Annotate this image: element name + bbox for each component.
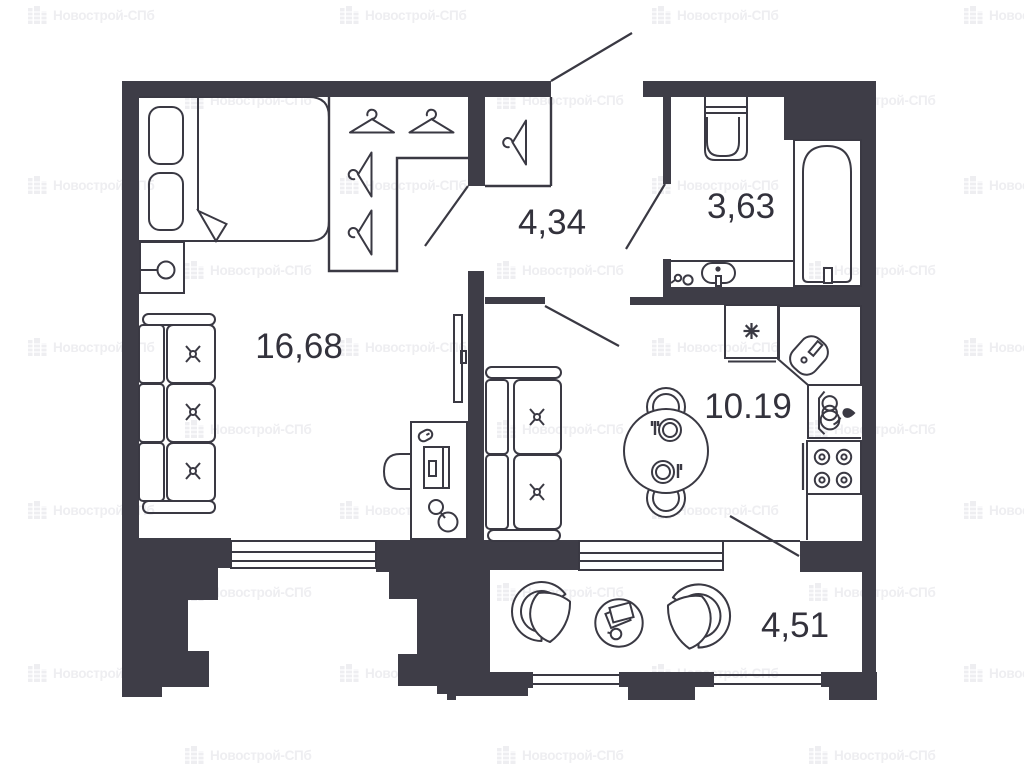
svg-text:10.19: 10.19 <box>704 387 792 426</box>
svg-text:4,34: 4,34 <box>518 203 586 242</box>
svg-text:3,63: 3,63 <box>707 187 775 226</box>
svg-text:16,68: 16,68 <box>255 327 343 366</box>
svg-text:4,51: 4,51 <box>761 606 829 645</box>
